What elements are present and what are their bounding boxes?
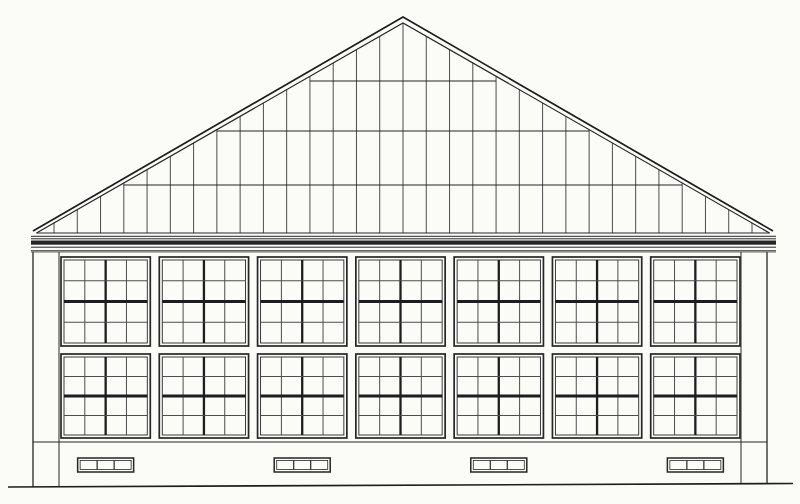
elevation-drawing-sheet <box>0 0 800 504</box>
elevation-drawing <box>0 0 800 504</box>
cornice-fascia-band <box>31 241 776 245</box>
